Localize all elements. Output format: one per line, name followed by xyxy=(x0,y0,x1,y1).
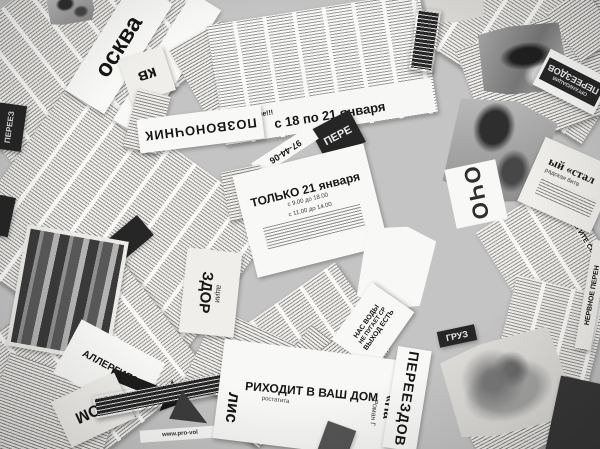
newspaper-collage-photo: БЕРЕГИТЕ СВОЙ осква кв Внимание!!! с 18 … xyxy=(0,0,600,449)
vyhod-content: НАС ВОДЫ НЕ ПУГАЕТ СР ВЫХОД ЕСТЬ xyxy=(350,300,395,352)
tolko-content: ТОЛЬКО 21 января с 9.00 до 18.00 с 11.00… xyxy=(249,170,371,250)
headline-gruz: ГРУЗ xyxy=(445,329,469,342)
vertical-lis: лис xyxy=(223,391,244,424)
headline-pereezdov: ПЕРЕЕЗДОВ xyxy=(393,350,422,447)
headline-pozvonochnik: ПОЗВОНОЧНИК xyxy=(144,116,258,143)
subline-rostatita: ростатита xyxy=(261,396,289,407)
headline-pereez: ПЕРЕЕЗ xyxy=(2,110,15,143)
headline-ocho: ОЧО xyxy=(459,164,492,223)
vertical-roman: Роман Г xyxy=(367,399,379,426)
headline-pere: ПЕРЕ xyxy=(322,124,354,148)
headline-kv: кв xyxy=(135,64,158,86)
url-text: www.pro-vol xyxy=(162,430,198,438)
subhead-acii: ации xyxy=(212,284,224,303)
scrap-zdor: ЗДОР ации xyxy=(179,247,243,337)
stal-content: ый «стал радская битв xyxy=(529,153,600,218)
scrap-url: www.pro-vol xyxy=(140,425,221,443)
scrap-gruz: ГРУЗ xyxy=(437,324,477,348)
